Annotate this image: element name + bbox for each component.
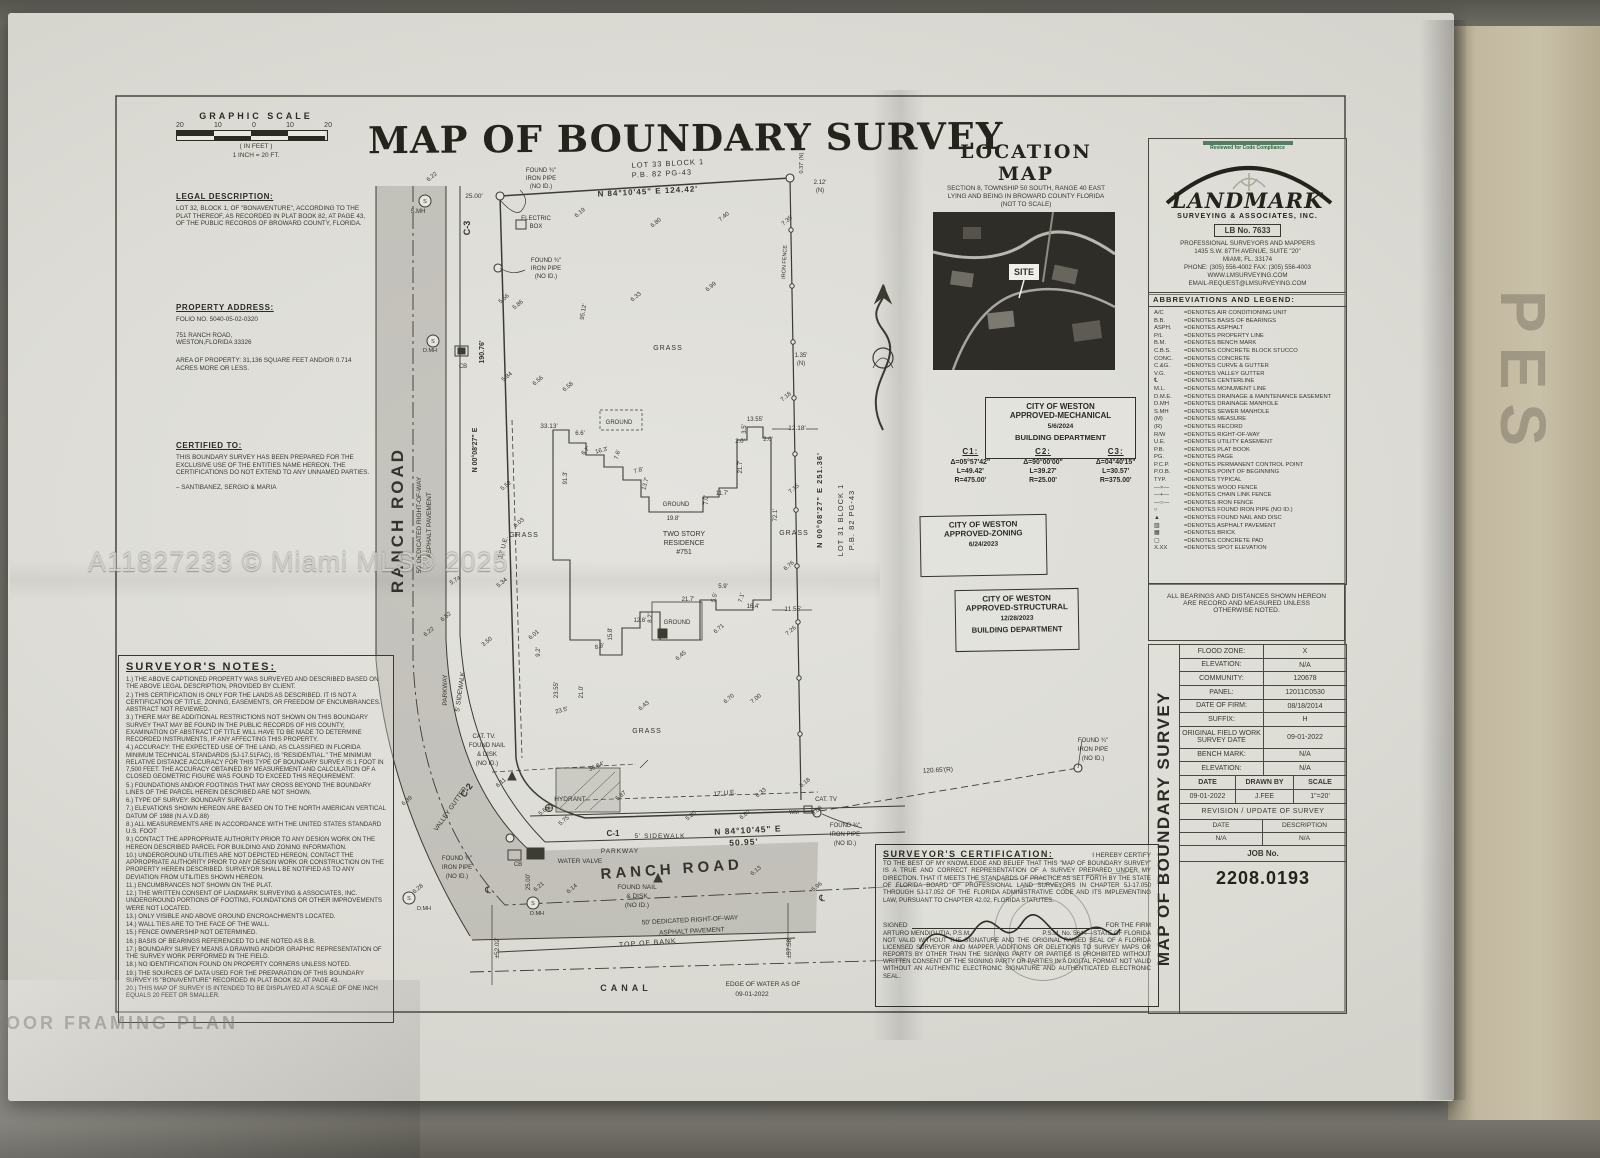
- legend-desc: =DENOTES POINT OF BEGINNING: [1184, 469, 1341, 477]
- legend-abbr: —×—: [1154, 485, 1184, 493]
- legend-item: P.B. =DENOTES PLAT BOOK: [1154, 447, 1341, 455]
- drawing-label: 2.0': [763, 437, 773, 443]
- legend-abbr: D.M.E.: [1154, 394, 1184, 402]
- certification-heading: SURVEYOR'S CERTIFICATION:: [883, 849, 1053, 859]
- flood-label: DATE OF FIRM:: [1180, 700, 1264, 713]
- drawing-label: LOT 31 BLOCK 1: [836, 484, 845, 557]
- legal-description-body: LOT 32, BLOCK 1, OF "BONAVENTURE", ACCOR…: [176, 205, 366, 228]
- surveyor-note: 1.) THE ABOVE CAPTIONED PROPERTY WAS SUR…: [126, 676, 386, 691]
- location-map: LOCATION MAP SECTION 8, TOWNSHIP 50 SOUT…: [929, 141, 1123, 370]
- flood-value: H: [1264, 714, 1346, 726]
- drawing-label: S: [407, 896, 411, 902]
- drawing-label: 6.76: [783, 560, 796, 573]
- flood-label: PANEL:: [1180, 686, 1264, 699]
- drawing-label: EDGE OF WATER AS OF: [726, 981, 801, 988]
- legend-desc: =DENOTES CURVE & GUTTER: [1184, 363, 1341, 371]
- property-address-heading: PROPERTY ADDRESS:: [176, 303, 371, 312]
- drawing-label: GRASS: [509, 532, 539, 539]
- scale-bar: [176, 130, 328, 141]
- surveyor-note: 18.) NO IDENTIFICATION FOUND ON PROPERTY…: [126, 961, 386, 968]
- drawing-label: 6.56: [532, 375, 545, 388]
- firm-block: Reviewed for Code Compliance LANDMARK SU…: [1148, 138, 1347, 295]
- curve-name: C3:: [1082, 447, 1149, 458]
- drawing-label: & DISK: [477, 752, 497, 758]
- drawing-label: 120.65'(R): [923, 766, 953, 775]
- legend-item: ▦ =DENOTES BRICK: [1154, 530, 1341, 538]
- drawing-label: 21.7': [682, 597, 695, 603]
- drawing-label: 13.55': [747, 417, 763, 423]
- revision-header-row: DATE DESCRIPTION: [1180, 820, 1346, 833]
- legend-item: D.MH =DENOTES DRAINAGE MANHOLE: [1154, 401, 1341, 409]
- drawing-label: ±57.58': [786, 937, 793, 958]
- legend-desc: =DENOTES FOUND IRON PIPE (NO ID.): [1184, 507, 1341, 515]
- flood-row: ORIGINAL FIELD WORK SURVEY DATE 09-01-20…: [1180, 727, 1346, 748]
- drawing-label: 6.11: [495, 777, 508, 789]
- drawing-label: (NO ID.): [1082, 756, 1104, 762]
- drawnby-header: DRAWN BY: [1236, 776, 1294, 789]
- flood-label: ELEVATION:: [1180, 762, 1264, 775]
- legend-desc: =DENOTES CONCRETE BLOCK STUCCO: [1184, 348, 1341, 356]
- drawing-label: 5.52: [500, 480, 513, 493]
- scale-tick: 10: [214, 122, 222, 129]
- legend-item: ▲ =DENOTES FOUND NAIL AND DISC: [1154, 515, 1341, 523]
- drawing-label: 13.7': [641, 477, 650, 491]
- drawing-label: 16.3': [595, 446, 609, 455]
- drawing-label: 95.12': [580, 303, 589, 320]
- date-table-values: 09-01-2022 J.FEE 1"=20': [1180, 790, 1346, 804]
- date-header: DATE: [1180, 776, 1236, 789]
- drawing-label: GRASS: [632, 728, 662, 735]
- surveyor-note: 8.) ALL MEASUREMENTS ARE IN ACCORDANCE W…: [126, 821, 386, 836]
- firm-phone: PHONE: (305) 556-4002 FAX: (305) 556-400…: [1149, 264, 1346, 272]
- curve-data-table: C1: Δ=05°57'42" L=49.42' R=475.00' C2: Δ…: [937, 447, 1149, 486]
- drawing-label: FOUND ¾": [1078, 738, 1108, 744]
- legend-abbr: CONC.: [1154, 356, 1184, 364]
- flood-row: DATE OF FIRM: 08/18/2014: [1180, 700, 1346, 714]
- flood-label: ORIGINAL FIELD WORK SURVEY DATE: [1180, 727, 1264, 747]
- revision-value-row: N/A N/A: [1180, 833, 1346, 846]
- drawing-label: 5.56: [498, 293, 511, 306]
- legend-abbr: —+—: [1154, 492, 1184, 500]
- drawing-label: GROUND: [664, 620, 691, 626]
- graphic-scale-heading: GRAPHIC SCALE: [176, 111, 336, 121]
- curve-name: C2:: [1010, 447, 1077, 458]
- firm-profession: PROFESSIONAL SURVEYORS AND MAPPERS: [1149, 240, 1346, 248]
- drawing-label: 7.6': [614, 449, 622, 460]
- flood-row: FLOOD ZONE: X: [1180, 645, 1346, 659]
- revision-date-value: N/A: [1180, 833, 1263, 845]
- surveyors-notes: SURVEYOR'S NOTES: 1.) THE ABOVE CAPTIONE…: [118, 655, 394, 1023]
- job-number: 2208.0193: [1180, 862, 1346, 895]
- surveyor-note: 9.) CONTACT THE APPROPRIATE AUTHORITY PR…: [126, 836, 386, 851]
- drawing-label: 25.00': [526, 874, 532, 890]
- legend-item: A/C =DENOTES AIR CONDITIONING UNIT: [1154, 310, 1341, 318]
- flood-value: N/A: [1264, 763, 1346, 775]
- bleed-through-bottom-text: OOR FRAMING PLAN: [6, 1013, 238, 1034]
- legend-desc: =DENOTES AIR CONDITIONING UNIT: [1184, 310, 1341, 318]
- legend-item: V.G. =DENOTES VALLEY GUTTER: [1154, 371, 1341, 379]
- legend-abbr: P.O.B.: [1154, 469, 1184, 477]
- bearings-note: ALL BEARINGS AND DISTANCES SHOWN HEREON …: [1148, 583, 1345, 641]
- legend-desc: =DENOTES BASIS OF BEARINGS: [1184, 318, 1341, 326]
- flood-row: BENCH MARK: N/A: [1180, 749, 1346, 763]
- curve-radius: R=25.00': [1010, 476, 1077, 485]
- legend-desc: =DENOTES MONUMENT LINE: [1184, 386, 1341, 394]
- surveyor-note: 6.) TYPE OF SURVEY: BOUNDARY SURVEY: [126, 797, 386, 804]
- legend-item: ASPH. =DENOTES ASPHALT: [1154, 325, 1341, 333]
- stamp-type: APPROVED-MECHANICAL: [988, 411, 1133, 420]
- drawing-label: (N): [816, 188, 824, 194]
- stamp-approved-zoning: CITY OF WESTON APPROVED-ZONING 6/24/2023: [919, 514, 1047, 577]
- curve-delta: Δ=90°00'00": [1010, 458, 1077, 467]
- drawing-label: 7.35: [781, 215, 794, 228]
- legend-item: P/L =DENOTES PROPERTY LINE: [1154, 333, 1341, 341]
- drawing-label: 33.13': [540, 423, 558, 430]
- drawing-label: 11.55': [784, 606, 801, 613]
- drawing-label: (NO ID.): [446, 874, 468, 880]
- legend-item: ▧ =DENOTES ASPHALT PAVEMENT: [1154, 523, 1341, 531]
- legend-abbr: X.XX: [1154, 545, 1184, 553]
- firm-street: 1435 S.W. 87TH AVENUE, SUITE "20": [1149, 248, 1346, 256]
- flood-row: COMMUNITY: 120678: [1180, 672, 1346, 686]
- legend-abbr: (R): [1154, 424, 1184, 432]
- legend-item: S.MH =DENOTES SEWER MANHOLE: [1154, 409, 1341, 417]
- location-map-sub1: SECTION 8, TOWNSHIP 50 SOUTH, RANGE 40 E…: [929, 185, 1123, 193]
- drawing-label: 7.40: [718, 211, 731, 224]
- scale-tick: 20: [324, 122, 332, 129]
- stamp-date: 5/6/2024: [988, 423, 1133, 430]
- legend-abbr: U.E.: [1154, 439, 1184, 447]
- legend-abbr: C.B.S.: [1154, 348, 1184, 356]
- drawing-label: 7.8': [633, 467, 644, 475]
- flood-value: 09-01-2022: [1264, 731, 1346, 743]
- drawing-label: 6.19: [574, 207, 587, 220]
- legend-desc: =DENOTES RECORD: [1184, 424, 1341, 432]
- firm-website: WWW.LMSURVEYING.COM: [1149, 272, 1346, 280]
- aerial-photo: SITE: [933, 212, 1115, 370]
- certified-to-body: THIS BOUNDARY SURVEY HAS BEEN PREPARED F…: [176, 454, 371, 477]
- legend-desc: =DENOTES PLAT BOOK: [1184, 447, 1341, 455]
- drawing-label: 5' SIDEWALK: [634, 833, 685, 840]
- drawing-label: 190.76': [479, 340, 486, 363]
- stamp-type: APPROVED-STRUCTURAL: [958, 602, 1076, 613]
- drawing-label: 8.8': [594, 643, 605, 651]
- curve-radius: R=475.00': [937, 476, 1004, 485]
- location-map-heading: LOCATION MAP: [929, 141, 1123, 185]
- surveyor-note: 17.) BOUNDARY SURVEY MEANS A DRAWING AND…: [126, 946, 386, 961]
- stamp-date: 6/24/2023: [923, 540, 1044, 549]
- drawing-label: P.B. 82 PG-43: [847, 490, 856, 550]
- drawing-label: N 84°10'45" E: [714, 823, 782, 837]
- legend-desc: =DENOTES RIGHT-OF-WAY: [1184, 432, 1341, 440]
- legend-desc: =DENOTES SEWER MANHOLE: [1184, 409, 1341, 417]
- legend-desc: =DENOTES UTILITY EASEMENT: [1184, 439, 1341, 447]
- surveyor-note: 4.) ACCURACY: THE EXPECTED USE OF THE LA…: [126, 744, 386, 780]
- drawing-label: RESIDENCE: [664, 540, 705, 547]
- legend-item: P.O.B. =DENOTES POINT OF BEGINNING: [1154, 469, 1341, 477]
- surveyor-note: 11.) ENCUMBRANCES NOT SHOWN ON THE PLAT.: [126, 882, 386, 889]
- photographed-survey-sheet: PES: [0, 0, 1600, 1158]
- property-area: AREA OF PROPERTY: 31,136 SQUARE FEET AND…: [176, 357, 371, 372]
- legend-abbr: D.MH: [1154, 401, 1184, 409]
- legend-item: ℄ =DENOTES CENTERLINE: [1154, 378, 1341, 386]
- certified-to-heading: CERTIFIED TO:: [176, 441, 371, 450]
- legend-item: —×— =DENOTES WOOD FENCE: [1154, 485, 1341, 493]
- legend-abbr: ▧: [1154, 523, 1184, 531]
- revision-heading: REVISION / UPDATE OF SURVEY: [1180, 804, 1346, 820]
- legend-abbr: ▦: [1154, 530, 1184, 538]
- flood-label: BENCH MARK:: [1180, 749, 1264, 762]
- drawing-label: 16.4': [747, 604, 760, 610]
- drawing-label: FOUND ¾": [526, 168, 556, 174]
- surveyor-note: 12.) THE WRITTEN CONSENT OF LANDMARK SUR…: [126, 890, 386, 912]
- drawing-label: 6.33: [755, 787, 768, 800]
- flood-value: N/A: [1264, 659, 1346, 671]
- title-block-column: MAP OF BOUNDARY SURVEY FLOOD ZONE: X ELE…: [1148, 644, 1347, 1014]
- drawing-label: D.MH: [417, 906, 431, 912]
- legend-desc: =DENOTES VALLEY GUTTER: [1184, 371, 1341, 379]
- job-number-label: JOB No.: [1180, 846, 1346, 862]
- drawing-label: D.MH: [530, 911, 544, 917]
- flood-row: ELEVATION: N/A: [1180, 659, 1346, 673]
- legend-desc: =DENOTES DRAINAGE & MAINTENANCE EASEMENT: [1184, 394, 1341, 402]
- legend-desc: =DENOTES CHAIN LINK FENCE: [1184, 492, 1341, 500]
- legend-abbr: ○: [1154, 507, 1184, 515]
- flood-row: ELEVATION: N/A: [1180, 762, 1346, 776]
- flood-value: X: [1264, 645, 1346, 657]
- legend-desc: =DENOTES PROPERTY LINE: [1184, 333, 1341, 341]
- surveyor-note: 14.) WALL TIES ARE TO THE FACE OF THE WA…: [126, 921, 386, 928]
- legend-item: B.M. =DENOTES BENCH MARK: [1154, 340, 1341, 348]
- address-line-1: 751 RANCH ROAD,: [176, 332, 371, 340]
- drawing-label: C-3: [462, 221, 472, 236]
- drawing-label: IRON PIPE: [526, 176, 556, 182]
- mls-watermark: A11827233 © Miami MLS® 2025: [88, 547, 509, 578]
- legend-item: PG. =DENOTES PAGE: [1154, 454, 1341, 462]
- legend-abbr: ASPH.: [1154, 325, 1184, 333]
- drawing-label: 12' U.E.: [713, 789, 737, 798]
- legend-abbr: ▲: [1154, 515, 1184, 523]
- drawing-label: 6.71: [713, 623, 726, 636]
- drawing-label: FOUND ¾": [442, 856, 472, 862]
- property-address: PROPERTY ADDRESS: FOLIO NO. 5040-05-02-0…: [176, 303, 371, 372]
- firm-license-number: LB No. 7633: [1214, 224, 1282, 237]
- curve-data: C3: Δ=04°40'15" L=30.57' R=375.00': [1082, 447, 1149, 486]
- curve-data: C2: Δ=90°00'00" L=39.27' R=25.00': [1010, 447, 1077, 486]
- drawing-label: (NO ID.): [476, 761, 498, 767]
- curve-name: C1:: [937, 447, 1004, 458]
- legend-item: ○ =DENOTES FOUND IRON PIPE (NO ID.): [1154, 507, 1341, 515]
- flood-label: FLOOD ZONE:: [1180, 645, 1264, 658]
- firm-tagline: SURVEYING & ASSOCIATES, INC.: [1149, 213, 1346, 220]
- legend-item: U.E. =DENOTES UTILITY EASEMENT: [1154, 439, 1341, 447]
- drawing-label: 23.5': [555, 706, 569, 715]
- drawing-label: 3.5': [742, 424, 748, 434]
- drawing-label: ±52.02': [494, 937, 501, 958]
- stamp-department: BUILDING DEPARTMENT: [988, 433, 1133, 442]
- legend-desc: =DENOTES CENTERLINE: [1184, 378, 1341, 386]
- drawing-label: CAT. TV.: [473, 734, 496, 740]
- legend-abbr: C.&G.: [1154, 363, 1184, 371]
- code-compliance-bar: [1203, 141, 1293, 145]
- drawing-label: 12.6': [634, 618, 647, 624]
- drawing-label: IRON FENCE: [781, 245, 789, 280]
- drawing-label: 2.12': [814, 180, 827, 186]
- drawing-label: 6.43: [638, 700, 651, 713]
- drawing-label: S: [423, 199, 427, 205]
- abbreviations-legend: ABBREVIATIONS AND LEGEND: A/C =DENOTES A…: [1148, 292, 1347, 585]
- drawing-label: HYDRANT: [554, 796, 585, 803]
- drawing-label: 7.18: [780, 391, 793, 404]
- surveyor-note: 3.) THERE MAY BE ADDITIONAL RESTRICTIONS…: [126, 714, 386, 743]
- legend-abbr: V.G.: [1154, 371, 1184, 379]
- flood-label: SUFFIX:: [1180, 713, 1264, 726]
- drawing-label: 25.00': [465, 193, 483, 200]
- drawing-label: 5' SIDEWALK: [454, 671, 467, 712]
- drawing-label: GRASS: [779, 530, 809, 537]
- legend-item: CONC. =DENOTES CONCRETE: [1154, 356, 1341, 364]
- scale-value: 1"=20': [1294, 790, 1346, 803]
- drawing-label: & DISK: [626, 893, 648, 900]
- legend-abbr: P/L: [1154, 333, 1184, 341]
- legend-desc: =DENOTES BENCH MARK: [1184, 340, 1341, 348]
- surveyor-seal: [994, 883, 1092, 981]
- stamp-type: APPROVED-ZONING: [923, 528, 1044, 539]
- legend-item: TYP. =DENOTES TYPICAL: [1154, 477, 1341, 485]
- flood-label: COMMUNITY:: [1180, 672, 1264, 685]
- drawing-label: IRON PIPE: [442, 865, 472, 871]
- legend-desc: =DENOTES CONCRETE PAD: [1184, 538, 1341, 546]
- drawing-label: 6.80: [650, 217, 663, 230]
- revision-desc-value: N/A: [1263, 833, 1346, 845]
- aerial-photo-graphic: SITE: [933, 212, 1115, 370]
- legend-abbr: (M): [1154, 416, 1184, 424]
- legend-abbr: ℄: [1154, 378, 1184, 386]
- scale-note-inch: 1 INCH = 20 FT.: [176, 152, 336, 159]
- curve-length: L=30.57': [1082, 467, 1149, 476]
- legend-abbr: S.MH: [1154, 409, 1184, 417]
- drawing-label: IRON PIPE: [531, 266, 561, 272]
- drawing-label: 2.0': [735, 439, 745, 445]
- stamp-department: BUILDING DEPARTMENT: [958, 624, 1076, 635]
- drawing-label: 11.7': [716, 491, 728, 497]
- drawnby-value: J.FEE: [1236, 790, 1294, 803]
- legend-item: C.B.S. =DENOTES CONCRETE BLOCK STUCCO: [1154, 348, 1341, 356]
- surveyor-note: 2.) THIS CERTIFICATION IS ONLY FOR THE L…: [126, 692, 386, 714]
- drawing-label: 21.7': [738, 461, 744, 474]
- drawing-label: 5.9': [718, 584, 728, 590]
- drawing-label: N 00°08'27" E: [471, 427, 479, 472]
- legend-item: D.M.E. =DENOTES DRAINAGE & MAINTENANCE E…: [1154, 394, 1341, 402]
- legend-desc: =DENOTES ASPHALT PAVEMENT: [1184, 523, 1341, 531]
- drawing-label: 6.33: [630, 291, 643, 304]
- drawing-label: C-1: [607, 829, 620, 838]
- drawing-label: N 00°08'27" E 251.36': [815, 452, 824, 548]
- legend-desc: =DENOTES MEASURE: [1184, 416, 1341, 424]
- flood-row: SUFFIX: H: [1180, 713, 1346, 727]
- drawing-label: (NO ID.): [625, 902, 649, 909]
- legend-abbr: —○—: [1154, 500, 1184, 508]
- drawing-label: PARKWAY: [442, 674, 449, 706]
- drawing-label: (NO ID.): [530, 184, 552, 190]
- curve-length: L=49.42': [937, 467, 1004, 476]
- drawing-label: 21.0': [579, 686, 585, 699]
- drawing-label: #751: [676, 549, 692, 556]
- drawing-label: 7.15: [788, 483, 801, 496]
- surveyor-note: 20.) THIS MAP OF SURVEY IS INTENDED TO B…: [126, 985, 386, 1000]
- legend-item: X.XX =DENOTES SPOT ELEVATION: [1154, 545, 1341, 553]
- drawing-label: 6.01: [528, 629, 541, 642]
- legend-item: M.L. =DENOTES MONUMENT LINE: [1154, 386, 1341, 394]
- legend-desc: =DENOTES FOUND NAIL AND DISC: [1184, 515, 1341, 523]
- scale-note-feet: ( IN FEET ): [176, 143, 336, 150]
- drawing-label: ELECTRIC: [521, 216, 551, 222]
- site-label: SITE: [1014, 267, 1034, 277]
- graphic-scale-ticks: 201001020: [176, 122, 332, 129]
- drawing-label: (N): [797, 361, 805, 367]
- drawing-label: 5.75: [558, 815, 571, 828]
- surveyor-note: 7.) ELEVATIONS SHOWN HEREON ARE BASED ON…: [126, 805, 386, 820]
- legend-abbr: P.C.P.: [1154, 462, 1184, 470]
- surveyor-note: 10.) UNDERGROUND UTILITIES ARE NOT DEPIC…: [126, 852, 386, 881]
- drawing-label: 9.2': [536, 647, 542, 657]
- curve-data: C1: Δ=05°57'42" L=49.42' R=475.00': [937, 447, 1004, 486]
- drawing-label: FOUND NAIL: [617, 884, 657, 891]
- folio-number: FOLIO NO. 5040-05-02-0320: [176, 316, 371, 324]
- drawing-label: 7.26: [785, 625, 798, 638]
- drawing-label: 7.00: [750, 693, 763, 706]
- legend-abbr: ▢: [1154, 538, 1184, 546]
- legend-desc: =DENOTES BRICK: [1184, 530, 1341, 538]
- page-title: MAP OF BOUNDARY SURVEY: [368, 114, 1004, 162]
- drawing-label: 3.50: [481, 636, 494, 649]
- drawing-label: 12.18': [788, 425, 806, 432]
- legend-desc: =DENOTES SPOT ELEVATION: [1184, 545, 1341, 553]
- legend-abbr: R/W: [1154, 432, 1184, 440]
- flood-table: FLOOD ZONE: X ELEVATION: N/A COMMUNITY: …: [1180, 645, 1346, 776]
- legend-abbr: B.M.: [1154, 340, 1184, 348]
- flood-value: 08/18/2014: [1264, 700, 1346, 712]
- legend-desc: =DENOTES WOOD FENCE: [1184, 485, 1341, 493]
- flood-value: 12011C0530: [1264, 686, 1346, 698]
- certified-names: – SANTIBANEZ, SERGIO & MARIA: [176, 484, 371, 492]
- date-table-header: DATE DRAWN BY SCALE: [1180, 776, 1346, 790]
- graphic-scale: GRAPHIC SCALE 201001020 ( IN FEET ) 1 IN…: [176, 111, 336, 159]
- surveyor-note: 5.) FOUNDATIONS AND/OR FOOTINGS THAT MAY…: [126, 782, 386, 797]
- drawing-label: D.MH: [423, 348, 437, 354]
- drawing-label: 6.45: [675, 650, 688, 663]
- legend-abbr: A/C: [1154, 310, 1184, 318]
- legend-item: P.C.P. =DENOTES PERMANENT CONTROL POINT: [1154, 462, 1341, 470]
- drawing-label: 7.0': [704, 495, 710, 505]
- legal-description-heading: LEGAL DESCRIPTION:: [176, 192, 366, 201]
- drawing-label: (NO ID.): [535, 274, 557, 280]
- drawing-label: 7.1': [738, 592, 746, 603]
- stamp-date: 12/28/2023: [958, 614, 1076, 623]
- drawing-label: BOX: [530, 224, 543, 230]
- drawing-label: 8.2': [648, 613, 654, 623]
- drawing-label: 6.58: [562, 381, 575, 394]
- legend-desc: =DENOTES IRON FENCE: [1184, 500, 1341, 508]
- revision-desc-header: DESCRIPTION: [1263, 820, 1346, 832]
- drawing-label: 50.95': [729, 836, 759, 848]
- legend-heading: ABBREVIATIONS AND LEGEND:: [1149, 293, 1346, 307]
- drawing-label: 6.99: [705, 281, 718, 294]
- drawing-label: 15.8': [608, 628, 614, 641]
- drawing-label: FOUND ¾": [830, 823, 860, 829]
- drawing-label: GROUND: [606, 420, 633, 426]
- firm-city: MIAMI, FL. 33174: [1149, 256, 1346, 264]
